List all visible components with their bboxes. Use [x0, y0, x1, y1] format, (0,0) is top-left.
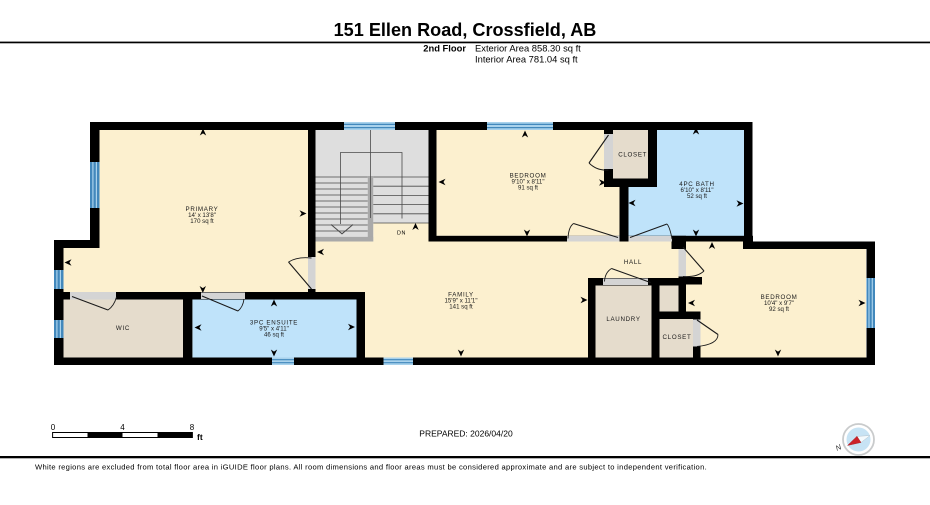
svg-text:CLOSET: CLOSET: [663, 334, 692, 341]
svg-text:WIC: WIC: [116, 325, 130, 332]
svg-text:52 sq ft: 52 sq ft: [687, 193, 707, 200]
svg-text:ft: ft: [197, 432, 203, 442]
svg-text:92 sq ft: 92 sq ft: [769, 306, 789, 313]
svg-text:8: 8: [190, 423, 195, 432]
svg-text:CLOSET: CLOSET: [618, 152, 647, 159]
svg-text:91 sq ft: 91 sq ft: [518, 185, 538, 192]
svg-text:Exterior Area 858.30 sq ft: Exterior Area 858.30 sq ft: [475, 43, 581, 54]
svg-text:141 sq ft: 141 sq ft: [449, 304, 473, 311]
svg-text:HALL: HALL: [624, 259, 642, 266]
svg-text:2nd Floor: 2nd Floor: [423, 43, 466, 54]
svg-text:46 sq ft: 46 sq ft: [264, 332, 284, 339]
svg-text:Interior Area 781.04 sq ft: Interior Area 781.04 sq ft: [475, 54, 578, 65]
svg-text:White regions are excluded fro: White regions are excluded from total fl…: [35, 462, 707, 471]
svg-text:PREPARED: 2026/04/20: PREPARED: 2026/04/20: [419, 429, 513, 439]
svg-text:170 sq ft: 170 sq ft: [190, 218, 214, 225]
svg-text:4: 4: [120, 423, 125, 432]
svg-text:LAUNDRY: LAUNDRY: [606, 316, 640, 323]
svg-text:0: 0: [51, 423, 56, 432]
svg-text:151 Ellen Road, Crossfield, AB: 151 Ellen Road, Crossfield, AB: [334, 20, 597, 40]
svg-text:DN: DN: [397, 231, 406, 237]
